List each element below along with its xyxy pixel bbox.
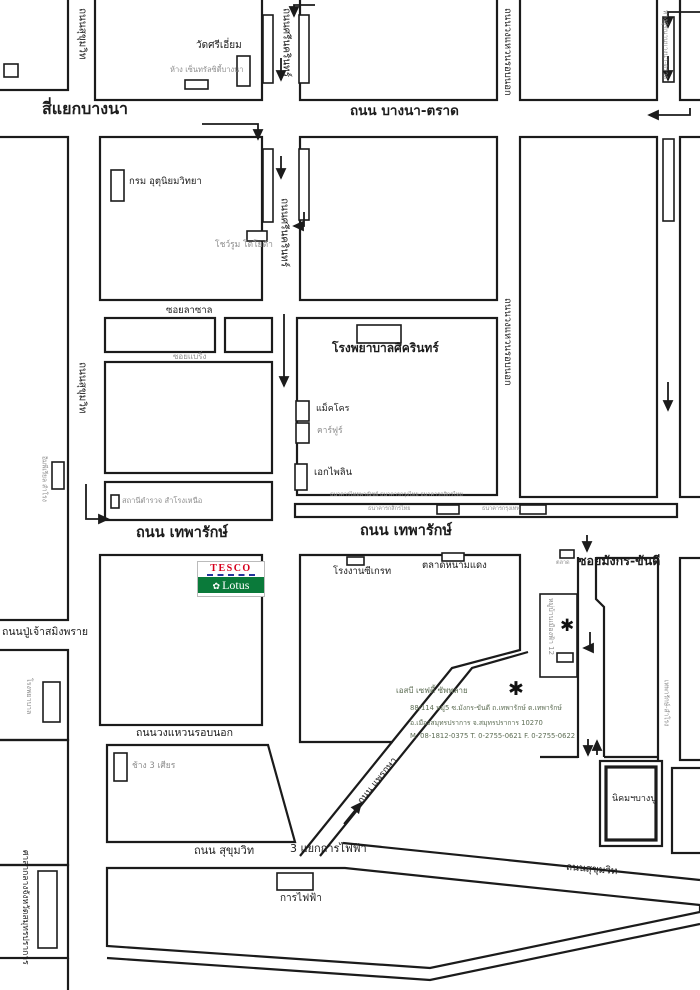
building-ek-pailin: [295, 464, 307, 490]
road-label-thepharak-west: ถนน เทพารักษ์: [136, 525, 228, 542]
destination-contact: M. 08-1812-0375 T. 0-2755-0621 F. 0-2755…: [410, 732, 616, 740]
tesco-wordmark: TESCO: [198, 562, 264, 574]
road-label-thepharak-east: ถนน เทพารักษ์: [360, 523, 452, 540]
median-srinakarin-4: [299, 149, 309, 220]
hand-drawn-location-map: ถนนสุขุมวิท ถนนศรีนครินทร์ ถนนวงแหวนรอบน…: [0, 0, 700, 990]
place-central-city: ห้าง เซ็นทรัลซิตี้บางนา: [170, 66, 243, 75]
place-erawan-elephant: ช้าง 3 เศียร: [132, 762, 175, 772]
road-label-bangna-trad: ถนน บางนา-ตราด: [350, 104, 459, 120]
lotus-wordmark: Lotus: [222, 578, 249, 592]
road-label-srinakarin-mid: ถนนศรีนครินทร์: [278, 198, 290, 267]
place-toyota-showroom: โชว์รูม โตโยต้า: [215, 241, 273, 251]
median-srinakarin-2: [299, 15, 309, 83]
label-kanfaifa-junction: 3 แยกการไฟฟ้า: [290, 843, 367, 856]
median-srinakarin-3: [263, 149, 273, 222]
place-carrefour: คาร์ฟูร์: [317, 427, 343, 437]
building-erawan: [114, 753, 127, 781]
road-label-ringroad-lower: ถนนวงแหวนรอบนอก: [136, 727, 233, 739]
road-label-ringroad-mid: ถนนวงแหวนรอบนอก: [501, 298, 512, 386]
place-police-station: สถานีตำรวจ สำโรงเหนือ: [122, 497, 202, 506]
building-village-inner: [557, 653, 573, 662]
place-city-hall: ศาลากลางจังหวัดสมุทรปราการ: [19, 850, 29, 965]
building-bank2: [520, 505, 546, 514]
building-carrefour: [296, 423, 309, 443]
place-village: หมู่บ้านเมืองฟ้า 12: [547, 598, 555, 655]
tesco-lotus-logo: TESCO ✿Lotus: [197, 561, 265, 597]
building-police-station: [111, 495, 119, 508]
road-label-pujao: ถนนปู่เจ้าสมิงพราย: [2, 626, 88, 638]
place-sikarin-hospital: โรงพยาบาลศิครินทร์: [332, 342, 439, 356]
place-electricity: การไฟฟ้า: [280, 893, 322, 905]
road-label-sukhumvit-top: ถนนสุขุมวิท: [76, 8, 88, 59]
label-bangna-junction: สี่แยกบางนา: [42, 100, 128, 118]
median-srinakarin-1: [263, 15, 273, 83]
tesco-dashes: [207, 574, 255, 576]
road-label-bearing: ซอยแบริ่ง: [173, 352, 206, 361]
building-imperial: [52, 462, 64, 489]
building-electricity: [277, 873, 313, 890]
destination-address1: 88/114 หมู่5 ซ.มังกร-ขันดี ถ.เทพารักษ์ ต…: [410, 702, 616, 713]
road-label-lasalle: ซอยลาซาล: [166, 306, 212, 317]
place-imperial-samrong: อิมพีเรียล สำโรง: [40, 456, 47, 502]
place-seagate: โรงงานซีเกรท: [333, 567, 391, 578]
destination-address: เอสบี เซฟตี้ ซัพพลาย 88/114 หมู่5 ซ.มังก…: [396, 684, 616, 744]
destination-address2: อ.เมืองสมุทรปราการ จ.สมุทรปราการ 10270: [410, 717, 616, 728]
building-seagate: [347, 557, 364, 565]
place-hospital-left: โรงพยาบาล: [25, 678, 33, 714]
place-banks-row: ธนาคารไทยพาณิชย์ ธนาคารกรุงไทย ธนาคารกสิ…: [330, 492, 463, 498]
building-meteorological: [111, 170, 124, 201]
building-hospital-left: [43, 682, 60, 722]
place-bangpu-estate: นิคมฯบางปู: [612, 794, 656, 804]
road-label-srinakarin-top: ถนนศรีนครินทร์: [280, 8, 292, 77]
building-bank1: [437, 505, 459, 514]
lotus-flower-icon: ✿: [213, 581, 221, 591]
place-bank1: ธนาคารกสิกรไทย: [368, 506, 411, 512]
road-label-sukhumvit-mid: ถนนสุขุมวิท: [76, 362, 88, 413]
lotus-bar: ✿Lotus: [198, 577, 264, 593]
place-bank2: ธนาคารกรุงเทพ: [482, 506, 520, 512]
place-namdaeng-market: ตลาดหนามแดง: [422, 561, 487, 572]
road-label-sukhumvit-lower: ถนน สุขุมวิท: [194, 845, 254, 858]
median-right-road-2: [663, 139, 674, 221]
destination-marker-icon: ✱: [560, 616, 574, 636]
road-label-thepharak-samrong: เทพารักษ์-สำโรง: [662, 680, 669, 726]
destination-name: เอสบี เซฟตี้ ซัพพลาย: [396, 684, 616, 697]
place-market-small: ตลาด: [556, 560, 570, 566]
place-meteorological: กรม อุตุนิยมวิทยา: [129, 177, 202, 188]
building-city-hall: [38, 871, 57, 948]
place-wat-sri-iam: วัดศรีเอี่ยม: [196, 40, 242, 52]
building-market-small: [560, 550, 574, 558]
building-makro: [296, 401, 309, 421]
road-label-ringroad-top: ถนนวงแหวนรอบนอก: [501, 8, 512, 96]
road-label-frontage: ทางคู่ขนานบางนา-ตราด: [661, 10, 668, 79]
building-central-city: [185, 80, 208, 89]
building-small-topleft: [4, 64, 18, 77]
place-makro: แม็คโคร: [316, 404, 349, 414]
road-label-mangkorn: ซอยมังกร-ขันดี: [578, 554, 660, 568]
place-ek-pailin: เอกไพลิน: [314, 468, 352, 479]
